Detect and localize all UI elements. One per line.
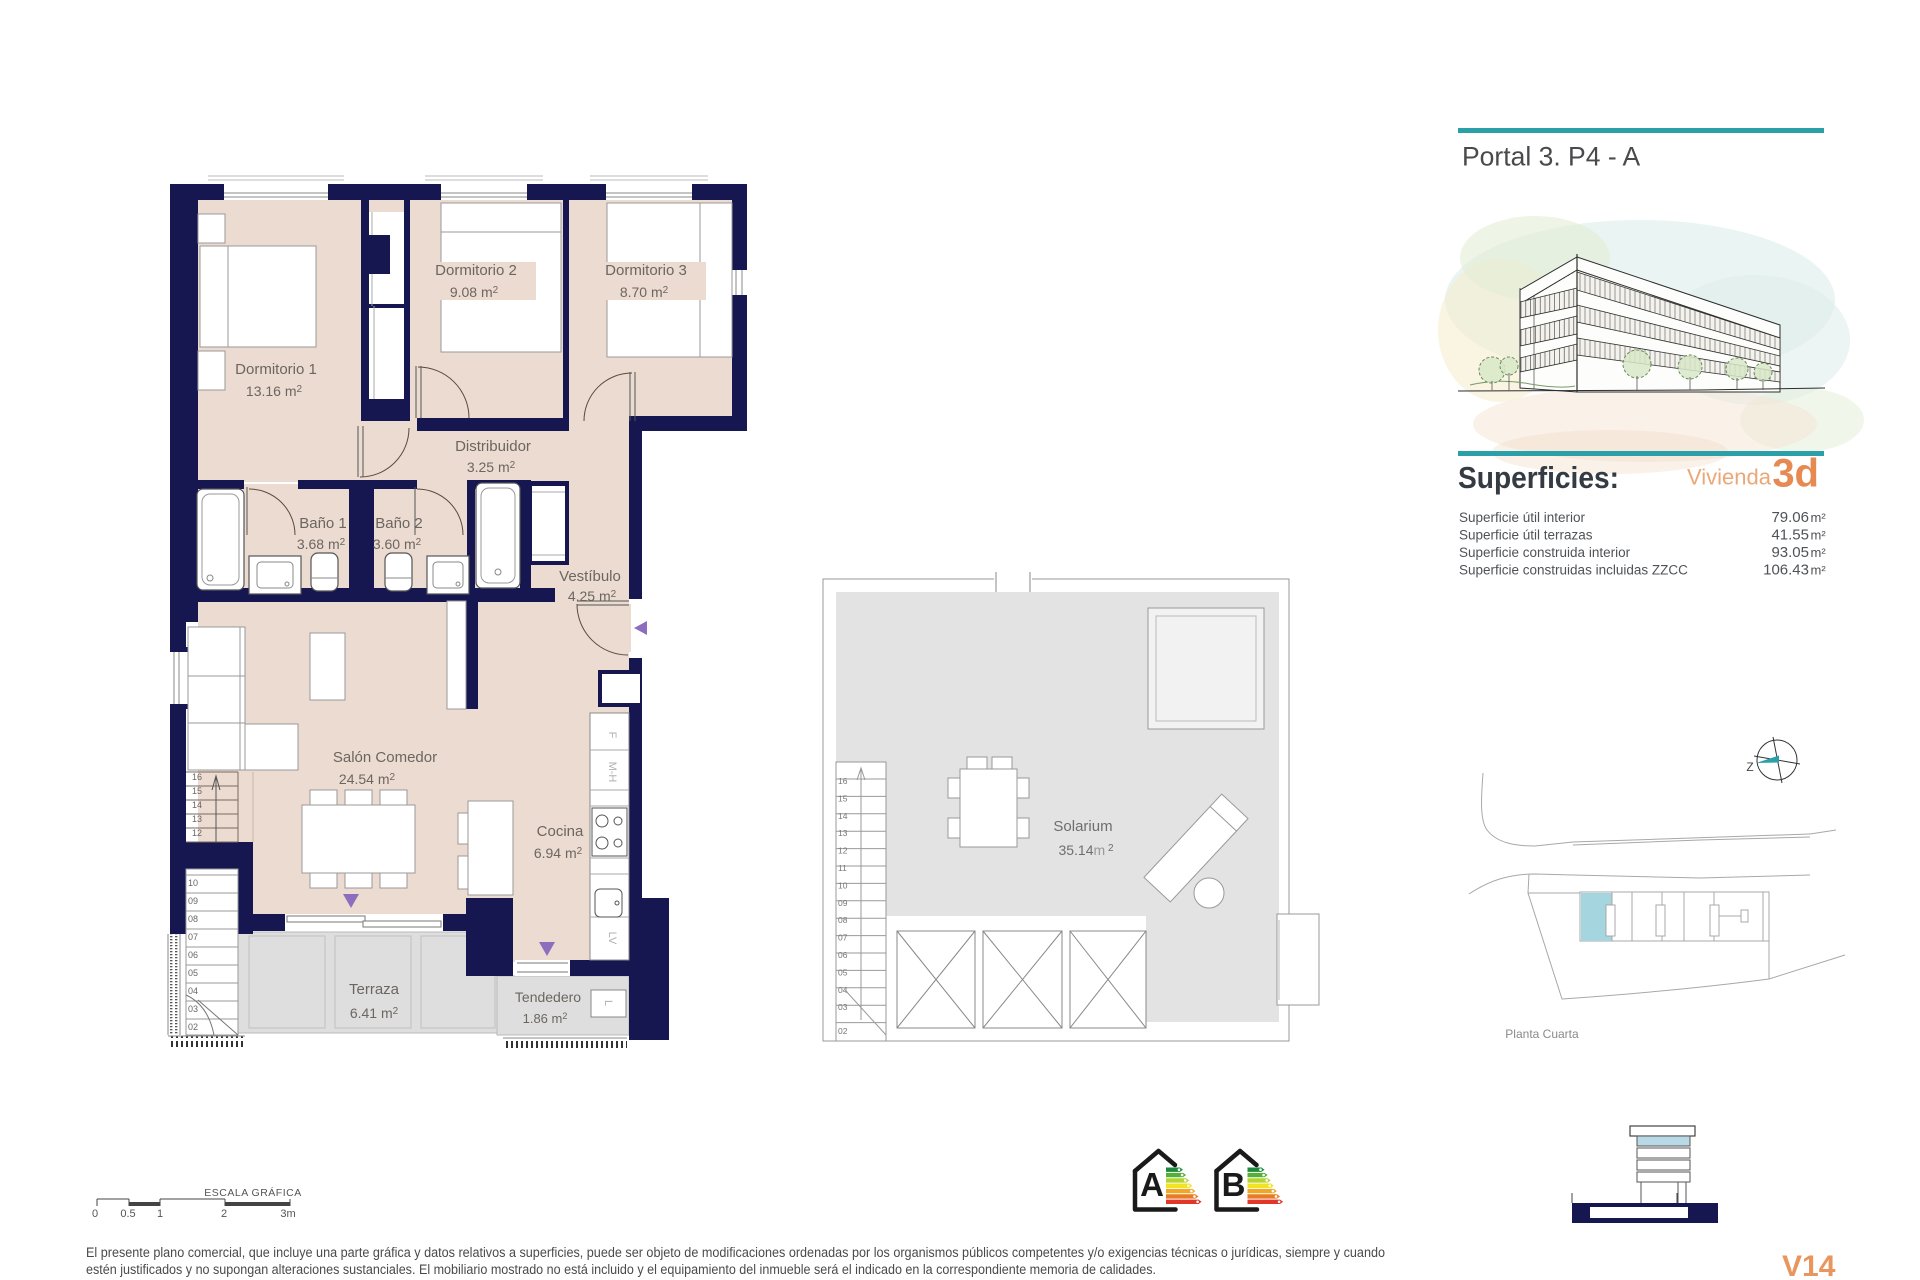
svg-text:Portal 3. P4 - A: Portal 3. P4 - A [1462, 142, 1641, 172]
svg-text:m²: m² [1811, 545, 1827, 560]
svg-text:16: 16 [838, 776, 848, 786]
svg-text:3m: 3m [280, 1208, 295, 1220]
svg-text:m²: m² [1811, 528, 1827, 543]
svg-text:Salón Comedor: Salón Comedor [333, 749, 437, 766]
svg-text:9.08 m2: 9.08 m2 [450, 284, 499, 300]
svg-text:09: 09 [188, 896, 198, 906]
svg-text:M-H: M-H [606, 762, 618, 783]
svg-text:13: 13 [838, 828, 848, 838]
svg-text:Superficies:: Superficies: [1458, 460, 1619, 495]
svg-text:0.5: 0.5 [120, 1208, 135, 1220]
svg-text:2: 2 [221, 1208, 227, 1220]
svg-text:0: 0 [92, 1208, 98, 1220]
svg-text:13.16 m2: 13.16 m2 [246, 383, 303, 399]
svg-text:04: 04 [838, 985, 848, 995]
svg-text:Vivienda: Vivienda [1687, 465, 1772, 490]
svg-text:10: 10 [838, 880, 848, 890]
svg-text:24.54 m2: 24.54 m2 [339, 771, 396, 787]
svg-text:07: 07 [838, 933, 848, 943]
svg-text:06: 06 [188, 950, 198, 960]
svg-text:79.06: 79.06 [1771, 509, 1809, 526]
svg-text:L: L [602, 1000, 614, 1006]
svg-text:Terraza: Terraza [349, 981, 400, 998]
svg-text:Planta Cuarta: Planta Cuarta [1505, 1027, 1579, 1041]
svg-text:Z: Z [1746, 760, 1753, 774]
svg-text:3.68 m2: 3.68 m2 [297, 536, 346, 552]
svg-text:V14: V14 [1782, 1250, 1836, 1280]
svg-text:Tendedero: Tendedero [515, 989, 581, 1005]
svg-text:106.43: 106.43 [1763, 562, 1809, 579]
svg-text:08: 08 [188, 914, 198, 924]
svg-text:Baño 2: Baño 2 [375, 515, 423, 532]
svg-text:Cocina: Cocina [537, 823, 584, 840]
svg-text:14: 14 [192, 800, 202, 810]
svg-text:estén justificados y no supong: estén justificados y no supongan alterac… [86, 1262, 1156, 1277]
svg-text:07: 07 [188, 932, 198, 942]
svg-text:3.25 m2: 3.25 m2 [467, 459, 516, 475]
svg-text:El presente plano comercial, q: El presente plano comercial, que incluye… [86, 1245, 1385, 1260]
svg-text:ESCALA GRÁFICA: ESCALA GRÁFICA [204, 1186, 301, 1199]
svg-text:Superficie útil terrazas: Superficie útil terrazas [1459, 528, 1593, 543]
svg-text:Dormitorio 1: Dormitorio 1 [235, 361, 317, 378]
svg-text:Superficie construida interior: Superficie construida interior [1459, 545, 1631, 560]
svg-text:09: 09 [838, 898, 848, 908]
svg-text:03: 03 [188, 1004, 198, 1014]
svg-text:Dormitorio 2: Dormitorio 2 [435, 262, 517, 279]
svg-text:12: 12 [838, 846, 848, 856]
svg-text:6.41 m2: 6.41 m2 [350, 1005, 399, 1021]
svg-text:Distribuidor: Distribuidor [455, 438, 531, 455]
svg-text:15: 15 [192, 786, 202, 796]
svg-text:08: 08 [838, 915, 848, 925]
svg-text:93.05: 93.05 [1771, 544, 1809, 561]
svg-text:Superficie construidas incluid: Superficie construidas incluidas ZZCC [1459, 563, 1688, 578]
svg-text:11: 11 [838, 863, 847, 873]
svg-text:41.55: 41.55 [1771, 527, 1809, 544]
svg-text:8.70 m2: 8.70 m2 [620, 284, 669, 300]
svg-text:13: 13 [192, 814, 202, 824]
svg-text:3d: 3d [1772, 452, 1819, 496]
svg-text:Dormitorio 3: Dormitorio 3 [605, 262, 687, 279]
svg-text:Solarium: Solarium [1053, 818, 1112, 835]
svg-text:Baño 1: Baño 1 [299, 515, 347, 532]
svg-text:04: 04 [188, 986, 198, 996]
svg-text:m²: m² [1811, 563, 1827, 578]
svg-text:03: 03 [838, 1002, 848, 1012]
svg-text:B: B [1222, 1166, 1246, 1203]
svg-text:12: 12 [192, 828, 202, 838]
svg-text:05: 05 [188, 968, 198, 978]
svg-text:3.60 m2: 3.60 m2 [373, 536, 422, 552]
svg-text:1.86 m2: 1.86 m2 [523, 1011, 568, 1026]
svg-text:15: 15 [838, 793, 848, 803]
svg-text:Vestíbulo: Vestíbulo [559, 568, 621, 585]
svg-text:10: 10 [188, 878, 198, 888]
svg-text:14: 14 [838, 811, 848, 821]
svg-text:05: 05 [838, 967, 848, 977]
svg-text:02: 02 [188, 1022, 198, 1032]
svg-text:m²: m² [1811, 510, 1827, 525]
svg-text:Superficie útil interior: Superficie útil interior [1459, 510, 1586, 525]
svg-text:6.94 m2: 6.94 m2 [534, 845, 583, 861]
svg-text:4.25 m2: 4.25 m2 [568, 588, 617, 604]
svg-text:LV: LV [606, 932, 618, 945]
svg-text:16: 16 [192, 772, 202, 782]
svg-text:02: 02 [838, 1026, 848, 1036]
svg-text:06: 06 [838, 950, 848, 960]
svg-text:1: 1 [157, 1208, 163, 1220]
svg-text:A: A [1140, 1166, 1164, 1203]
svg-text:F: F [606, 732, 618, 739]
